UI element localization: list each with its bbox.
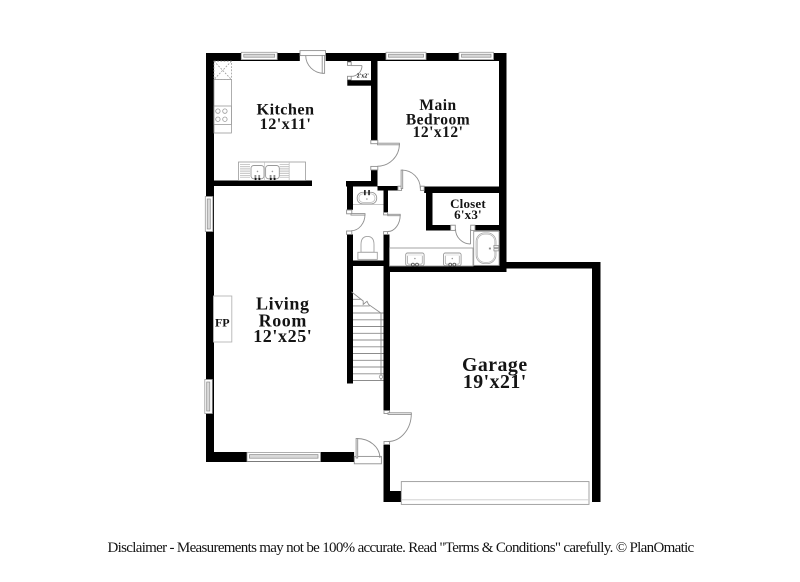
svg-text:Disclaimer - Measurements may: Disclaimer - Measurements may not be 100…	[107, 540, 694, 556]
svg-text:6'x3': 6'x3'	[454, 207, 482, 222]
svg-text:FP: FP	[215, 315, 230, 329]
svg-text:12'x25': 12'x25'	[253, 326, 312, 346]
svg-text:2'x2': 2'x2'	[357, 74, 370, 80]
svg-text:19'x21': 19'x21'	[463, 371, 527, 393]
svg-text:12'x11': 12'x11'	[260, 114, 312, 133]
svg-text:12'x12': 12'x12'	[413, 124, 464, 141]
